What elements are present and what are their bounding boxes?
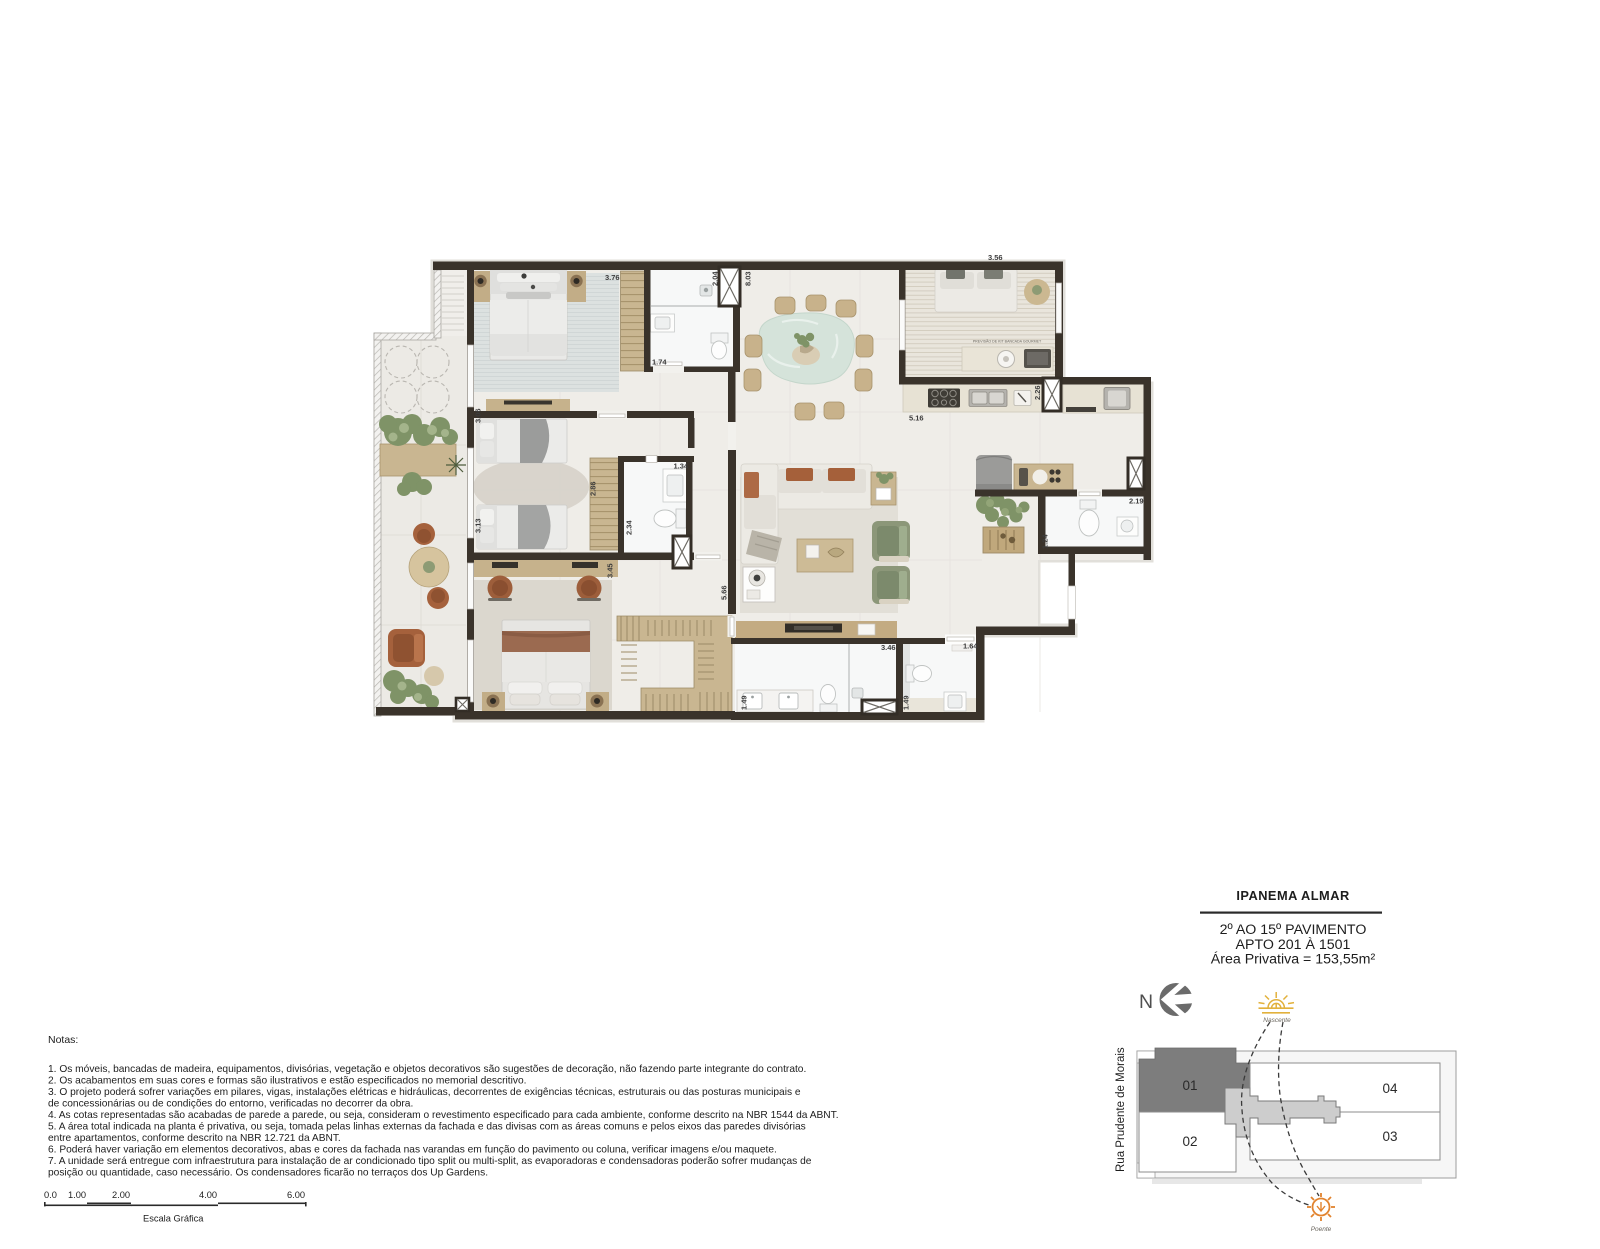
- svg-text:1.00: 1.00: [68, 1190, 86, 1200]
- svg-text:01: 01: [1182, 1078, 1197, 1093]
- svg-text:1.74: 1.74: [652, 358, 667, 367]
- svg-text:8.03: 8.03: [744, 271, 753, 286]
- svg-text:APTO 201 À 1501: APTO 201 À 1501: [1236, 936, 1351, 953]
- svg-text:4. As cotas representadas são: 4. As cotas representadas são acabadas d…: [48, 1110, 839, 1121]
- svg-text:Rua Prudente de Morais: Rua Prudente de Morais: [1115, 1047, 1127, 1172]
- svg-text:03: 03: [1382, 1129, 1397, 1144]
- svg-text:Nascente: Nascente: [1263, 1017, 1291, 1024]
- svg-text:3.56: 3.56: [988, 253, 1003, 262]
- svg-text:3.46: 3.46: [881, 643, 896, 652]
- svg-text:6. Poderá haver variação em el: 6. Poderá haver variação em elementos de…: [48, 1145, 777, 1156]
- svg-text:5.66: 5.66: [720, 585, 729, 600]
- svg-text:2.34: 2.34: [625, 520, 634, 535]
- svg-text:Poente: Poente: [1311, 1226, 1332, 1233]
- svg-text:3.13: 3.13: [474, 518, 483, 533]
- svg-text:2.26: 2.26: [1033, 385, 1042, 400]
- svg-text:3. O projeto poderá sofrer var: 3. O projeto poderá sofrer variações em …: [48, 1087, 801, 1098]
- svg-text:2º AO 15º PAVIMENTO: 2º AO 15º PAVIMENTO: [1220, 922, 1367, 938]
- svg-text:Área Privativa = 153,55m²: Área Privativa = 153,55m²: [1211, 951, 1376, 968]
- svg-text:1.64: 1.64: [963, 642, 978, 651]
- svg-text:6.00: 6.00: [287, 1190, 305, 1200]
- svg-text:1.24: 1.24: [1041, 534, 1050, 549]
- svg-text:1.49: 1.49: [902, 695, 911, 710]
- svg-text:IPANEMA ALMAR: IPANEMA ALMAR: [1236, 888, 1349, 903]
- svg-text:2.86: 2.86: [589, 481, 598, 496]
- svg-text:02: 02: [1182, 1134, 1197, 1149]
- svg-text:5.16: 5.16: [909, 414, 924, 423]
- svg-text:PREVISÃO DE KIT BANCADA GOURME: PREVISÃO DE KIT BANCADA GOURMET: [973, 339, 1042, 344]
- svg-text:04: 04: [1382, 1081, 1398, 1096]
- svg-text:posição ou quantidade, caso ne: posição ou quantidade, caso necessário. …: [48, 1168, 488, 1179]
- svg-text:1.34: 1.34: [674, 462, 689, 471]
- svg-text:2. Os acabamentos em suas core: 2. Os acabamentos em suas cores e formas…: [48, 1076, 526, 1087]
- svg-text:4.00: 4.00: [199, 1190, 217, 1200]
- svg-text:3.45: 3.45: [606, 563, 615, 578]
- svg-text:Notas:: Notas:: [48, 1034, 78, 1046]
- svg-text:1.49: 1.49: [740, 695, 749, 710]
- svg-text:3.06: 3.06: [474, 408, 483, 423]
- svg-text:2.00: 2.00: [112, 1190, 130, 1200]
- svg-text:5. A área total indicada na pl: 5. A área total indicada na planta é pri…: [48, 1122, 806, 1133]
- svg-text:1. Os móveis, bancadas de made: 1. Os móveis, bancadas de madeira, equip…: [48, 1064, 806, 1075]
- svg-text:0.0: 0.0: [44, 1190, 57, 1200]
- svg-text:de concessionárias ou de condi: de concessionárias ou de condições do en…: [48, 1099, 413, 1110]
- svg-text:3.76: 3.76: [605, 273, 620, 282]
- svg-text:7. A unidade será entregue com: 7. A unidade será entregue com infraestr…: [48, 1156, 812, 1167]
- svg-text:N: N: [1139, 991, 1153, 1013]
- svg-text:2.19: 2.19: [1129, 497, 1144, 506]
- svg-text:2.04: 2.04: [711, 271, 720, 286]
- svg-text:Escala Gráfica: Escala Gráfica: [143, 1214, 204, 1224]
- svg-text:entre apartamentos, conforme d: entre apartamentos, conforme descrito na…: [48, 1133, 341, 1144]
